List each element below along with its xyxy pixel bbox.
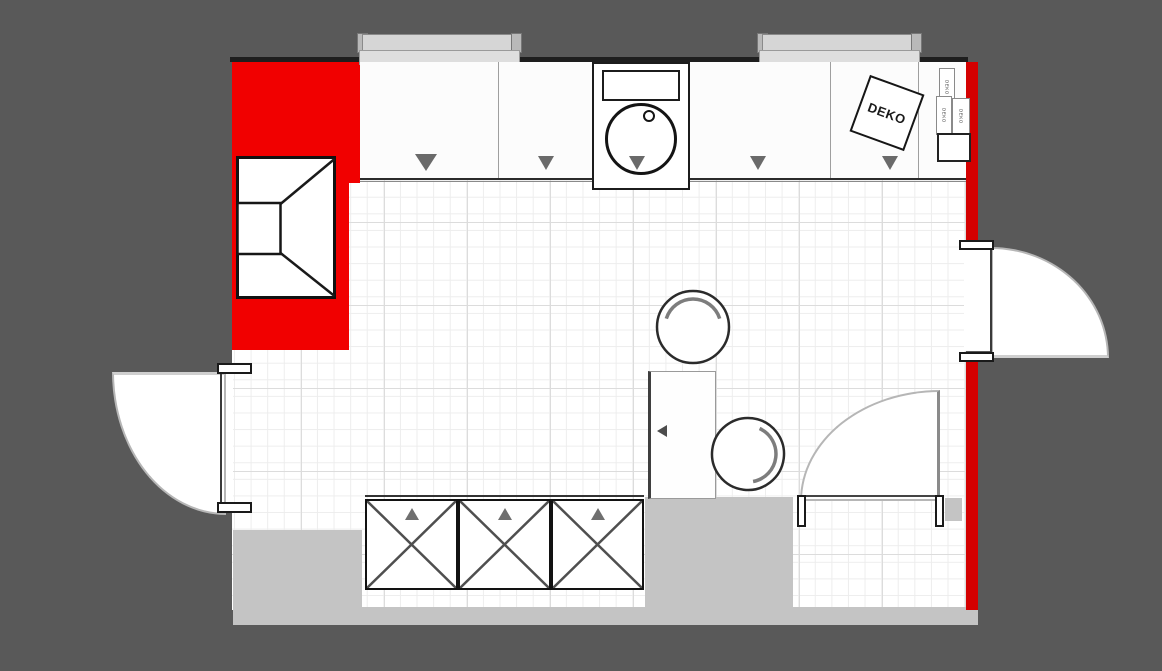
deko-strip[interactable]: DEKO	[952, 98, 970, 134]
door-opening-marker-down-icon	[750, 156, 766, 170]
door-jamb	[797, 495, 806, 527]
door-opening-marker-down-icon	[629, 156, 645, 170]
door-opening-marker-up-icon	[498, 508, 512, 520]
chair-1[interactable]	[655, 289, 731, 365]
base-cabinet-unit[interactable]	[551, 499, 644, 590]
deko-strip[interactable]: DEKO	[936, 96, 952, 135]
wall-segment-right-of-door[interactable]	[945, 498, 962, 521]
door-opening-marker-up-icon	[591, 508, 605, 520]
door-jamb	[217, 363, 252, 374]
cabinet-divider	[918, 62, 919, 178]
counter-edge-line	[365, 495, 644, 497]
window-1[interactable]	[357, 33, 520, 63]
base-cabinet-unit[interactable]	[458, 499, 551, 590]
door-opening-marker-down-icon	[538, 156, 554, 170]
floorplan-canvas: DEKO DEKO DEKO DEKO	[0, 0, 1162, 671]
door-jamb	[935, 495, 944, 527]
corner-small-box[interactable]	[937, 133, 971, 162]
deko-label: DEKO	[866, 99, 908, 127]
sink-cabinet[interactable]	[592, 62, 690, 190]
door-right-frame-line	[990, 247, 992, 354]
base-cabinet-unit[interactable]	[365, 499, 458, 590]
sink-drainer	[602, 70, 680, 101]
base-cabinet-row[interactable]	[365, 499, 644, 590]
door-right-swing[interactable]	[991, 247, 1109, 358]
sink-faucet-icon	[643, 110, 655, 122]
deko-strip-label: DEKO	[959, 109, 964, 124]
corner-cabinet[interactable]	[236, 156, 336, 299]
cabinet-divider	[830, 62, 831, 178]
deko-strip-label: DEKO	[942, 108, 947, 123]
door-right-threshold	[964, 250, 990, 351]
deko-strip-label: DEKO	[945, 80, 950, 95]
door-opening-marker-down-icon	[415, 154, 437, 171]
wall-strip-bottom[interactable]	[233, 607, 978, 625]
door-left-swing[interactable]	[112, 372, 226, 515]
wall-mass-bottom-right[interactable]	[645, 497, 793, 612]
chair-2[interactable]	[706, 412, 791, 497]
door-opening-marker-up-icon	[405, 508, 419, 520]
door-jamb	[959, 352, 994, 362]
door-opening-marker-left-icon	[657, 425, 667, 437]
window-2[interactable]	[757, 33, 920, 63]
door-jamb	[959, 240, 994, 250]
cabinet-divider	[498, 62, 499, 178]
door-opening-marker-down-icon	[882, 156, 898, 170]
door-left-frame-line	[220, 368, 222, 509]
door-bottom-opening-line	[806, 495, 936, 497]
door-jamb	[217, 502, 252, 513]
wall-red-right-lower[interactable]	[966, 358, 978, 610]
